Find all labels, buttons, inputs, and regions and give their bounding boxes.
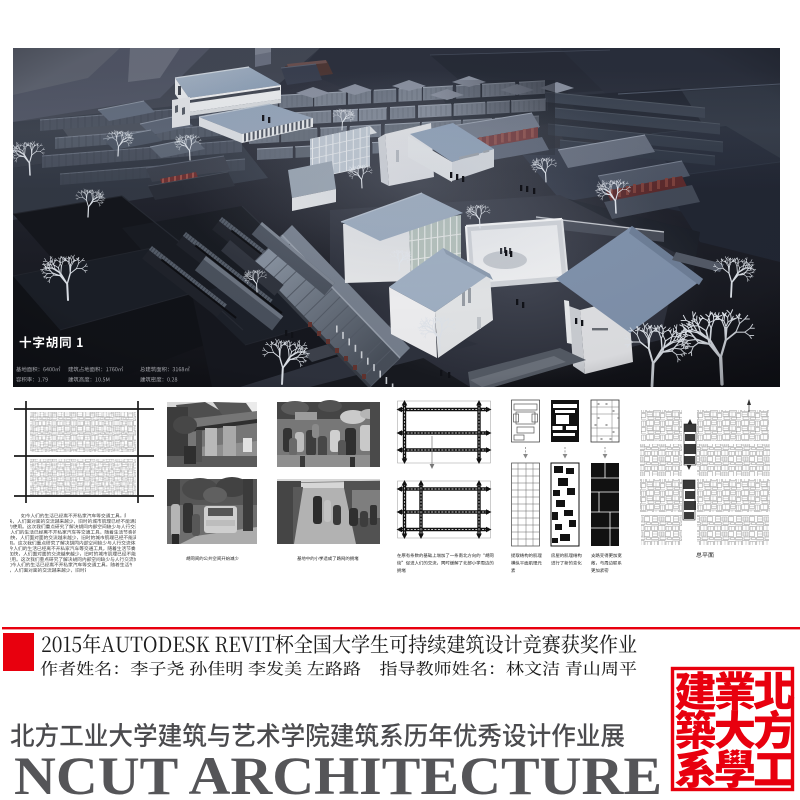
svg-text:NCUT ARCHITECTURE: NCUT ARCHITECTURE xyxy=(14,746,662,800)
